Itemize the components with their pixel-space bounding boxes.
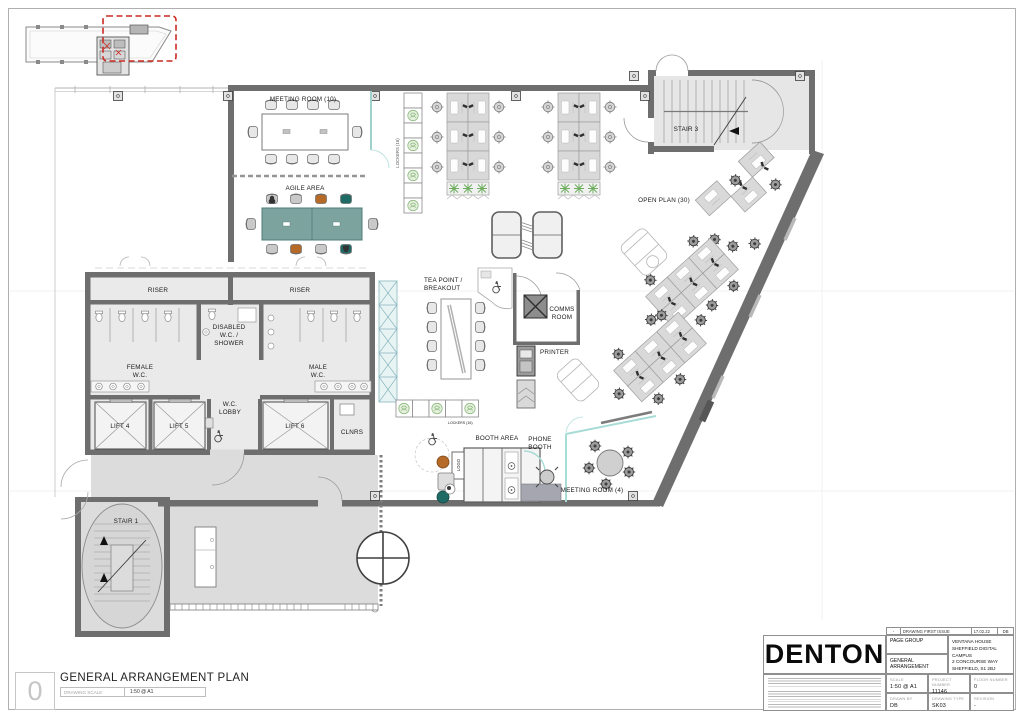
client-name: PAGE GROUP [886, 635, 948, 654]
svg-text:W.C. /: W.C. / [220, 332, 238, 339]
drawing-name: GENERAL ARRANGEMENT [886, 654, 948, 674]
drawing-scale-label: DRAWING SCALE [61, 688, 125, 696]
stair-1: STAIR 1 [82, 504, 162, 628]
agile-area-label: AGILE AREA [285, 185, 325, 192]
lift-6-label: LIFT 6 [285, 423, 305, 430]
field-revision: REVISION- [970, 693, 1014, 711]
key-plan-core [97, 37, 129, 75]
field-floor-number: FLOOR NUMBER0 [970, 674, 1014, 693]
floor-plan-sheet: MEETING ROOM (10) AGILE AREA L [0, 0, 1024, 723]
field-project-number: PROJECT NUMBER11146 [928, 674, 970, 693]
lounge-chair-orange [437, 456, 449, 468]
revision-row: - DRAWING FIRST ISSUE 17.02.22 DB [886, 627, 1014, 635]
denton-logo: DENTON [763, 635, 886, 674]
svg-text:W.C.: W.C. [311, 372, 325, 379]
lockers-label: LOCKERS (16) [395, 138, 400, 168]
riser-right-label: RISER [290, 287, 310, 294]
lift-4-label: LIFT 4 [110, 423, 130, 430]
revolving-door [357, 532, 409, 584]
drawing-scale-bar: DRAWING SCALE 1:50 @ A1 [60, 687, 206, 697]
revision-initials: DB [998, 628, 1013, 634]
svg-text:SHOWER: SHOWER [214, 340, 244, 347]
svg-text:ROOM: ROOM [552, 314, 572, 321]
female-wc-label: FEMALE [127, 364, 153, 371]
revision-rev: - [887, 628, 901, 634]
male-wc-label: MALE [309, 364, 327, 371]
printer-label: PRINTER [540, 349, 569, 356]
stair-3-label: STAIR 3 [674, 126, 699, 133]
drawing-number-box: 0 [15, 672, 55, 710]
glazed-screen [379, 281, 397, 402]
drawing-title: GENERAL ARRANGEMENT PLAN [60, 672, 380, 684]
revision-description: DRAWING FIRST ISSUE [901, 628, 972, 634]
revision-date: 17.02.22 [972, 628, 999, 634]
reception-desk [195, 527, 216, 587]
clnrs-label: CLNRS [341, 429, 363, 436]
lockers-row-label: LOCKERS (16) [448, 421, 473, 425]
svg-text:W.C.: W.C. [133, 372, 147, 379]
disabled-wc-label: DISABLED [213, 324, 246, 331]
svg-text:BREAKOUT: BREAKOUT [424, 285, 460, 292]
wc-lobby-label: W.C. [223, 401, 237, 408]
riser-left-label: RISER [148, 287, 168, 294]
notes-microtext [763, 674, 886, 711]
phone-booth-label: PHONE [528, 436, 551, 443]
svg-text:BOOTH: BOOTH [528, 444, 552, 451]
lift-5-label: LIFT 5 [169, 423, 189, 430]
comms-room-label: COMMS [549, 306, 574, 313]
drawing-scale-value: 1:50 @ A1 [125, 689, 153, 695]
stair-1-label: STAIR 1 [114, 518, 139, 525]
booth-area-label: BOOTH AREA [476, 435, 520, 442]
project-address: VENTANA HOUSE SHEFFIELD DIGITAL CAMPUS 2… [948, 635, 1014, 674]
field-drawn-by: DRAWN BYDB [886, 693, 928, 711]
meeting-room-10-label: MEETING ROOM (10) [270, 96, 336, 103]
svg-text:LOBBY: LOBBY [219, 409, 242, 416]
logo-panel-label: LOGO [456, 458, 461, 471]
title-block: - DRAWING FIRST ISSUE 17.02.22 DB DENTON… [763, 627, 1014, 711]
meeting-room-4-label: MEETING ROOM (4) [561, 487, 624, 494]
field-drawing-type: DRAWING TYPESK03 [928, 693, 970, 711]
field-scale: SCALE1:50 @ A1 [886, 674, 928, 693]
open-plan-label: OPEN PLAN (30) [638, 197, 690, 204]
tea-point-label: TEA POINT / [424, 277, 463, 284]
